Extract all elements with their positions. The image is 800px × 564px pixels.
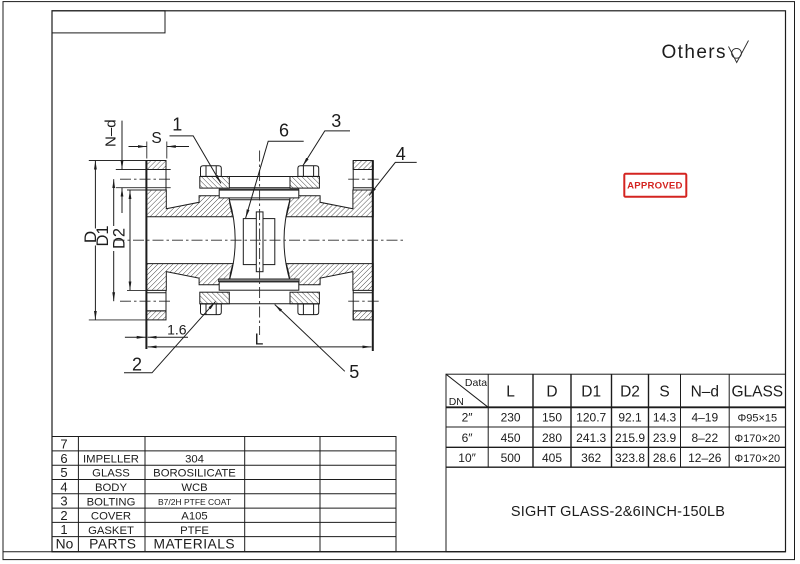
svg-text:3: 3 (60, 494, 67, 509)
svg-text:5: 5 (60, 465, 67, 480)
svg-text:6″: 6″ (462, 431, 474, 445)
svg-text:IMPELLER: IMPELLER (83, 453, 139, 465)
svg-text:PTFE: PTFE (180, 525, 209, 537)
svg-text:N–d: N–d (103, 119, 120, 147)
svg-text:GLASS: GLASS (731, 384, 783, 401)
svg-text:150: 150 (542, 411, 562, 425)
svg-text:Φ170×20: Φ170×20 (734, 453, 780, 465)
svg-text:A105: A105 (181, 511, 207, 523)
svg-text:2″: 2″ (462, 411, 474, 425)
svg-text:MATERIALS: MATERIALS (153, 536, 235, 551)
svg-text:BOROSILICATE: BOROSILICATE (153, 468, 236, 480)
svg-text:4: 4 (60, 479, 67, 494)
svg-text:D2: D2 (111, 228, 129, 249)
svg-text:D1: D1 (581, 384, 601, 401)
svg-text:23.9: 23.9 (653, 431, 677, 445)
svg-text:8–22: 8–22 (691, 431, 718, 445)
svg-text:1: 1 (172, 114, 182, 134)
svg-text:3: 3 (331, 111, 341, 131)
svg-text:COVER: COVER (91, 511, 131, 523)
svg-text:D1: D1 (94, 225, 112, 246)
svg-text:S: S (151, 130, 161, 147)
svg-text:4: 4 (396, 144, 406, 164)
svg-text:DN: DN (449, 396, 464, 408)
svg-text:No: No (56, 536, 74, 551)
svg-text:12–26: 12–26 (688, 451, 722, 465)
svg-text:Φ95×15: Φ95×15 (737, 413, 777, 425)
svg-text:N–d: N–d (691, 384, 719, 401)
svg-text:BOLTING: BOLTING (87, 496, 136, 508)
svg-text:4–19: 4–19 (691, 411, 718, 425)
svg-text:SIGHT GLASS-2&6INCH-150LB: SIGHT GLASS-2&6INCH-150LB (511, 504, 725, 520)
svg-text:215.9: 215.9 (615, 431, 645, 445)
svg-text:APPROVED: APPROVED (627, 180, 682, 191)
svg-text:280: 280 (542, 431, 562, 445)
svg-text:241.3: 241.3 (576, 431, 606, 445)
svg-text:WCB: WCB (181, 482, 207, 494)
svg-text:BODY: BODY (95, 482, 127, 494)
svg-text:5: 5 (349, 362, 359, 382)
svg-text:GASKET: GASKET (88, 525, 134, 537)
svg-text:362: 362 (581, 451, 601, 465)
svg-text:2: 2 (132, 355, 142, 375)
svg-text:B7/2H PTFE COAT: B7/2H PTFE COAT (158, 497, 231, 507)
svg-text:Others: Others (662, 42, 727, 63)
svg-text:92.1: 92.1 (618, 411, 642, 425)
svg-text:GLASS: GLASS (92, 468, 130, 480)
svg-text:28.6: 28.6 (653, 451, 677, 465)
svg-text:6: 6 (60, 451, 67, 466)
svg-text:D2: D2 (620, 384, 640, 401)
svg-text:323.8: 323.8 (615, 451, 645, 465)
svg-text:2: 2 (60, 508, 67, 523)
svg-text:1.6: 1.6 (167, 321, 187, 337)
svg-text:L: L (506, 384, 515, 401)
svg-text:Φ170×20: Φ170×20 (734, 433, 780, 445)
svg-text:120.7: 120.7 (576, 411, 606, 425)
svg-text:6: 6 (279, 121, 289, 141)
svg-text:230: 230 (501, 411, 521, 425)
svg-text:1: 1 (60, 522, 67, 537)
svg-text:D: D (546, 384, 557, 401)
svg-text:PARTS: PARTS (89, 536, 136, 551)
svg-text:7: 7 (60, 436, 67, 451)
svg-text:S: S (659, 384, 669, 401)
svg-text:500: 500 (501, 451, 521, 465)
svg-text:14.3: 14.3 (653, 411, 677, 425)
svg-text:10″: 10″ (458, 451, 476, 465)
svg-text:Data: Data (465, 377, 487, 389)
svg-text:405: 405 (542, 451, 562, 465)
svg-text:450: 450 (501, 431, 521, 445)
svg-text:304: 304 (185, 453, 204, 465)
